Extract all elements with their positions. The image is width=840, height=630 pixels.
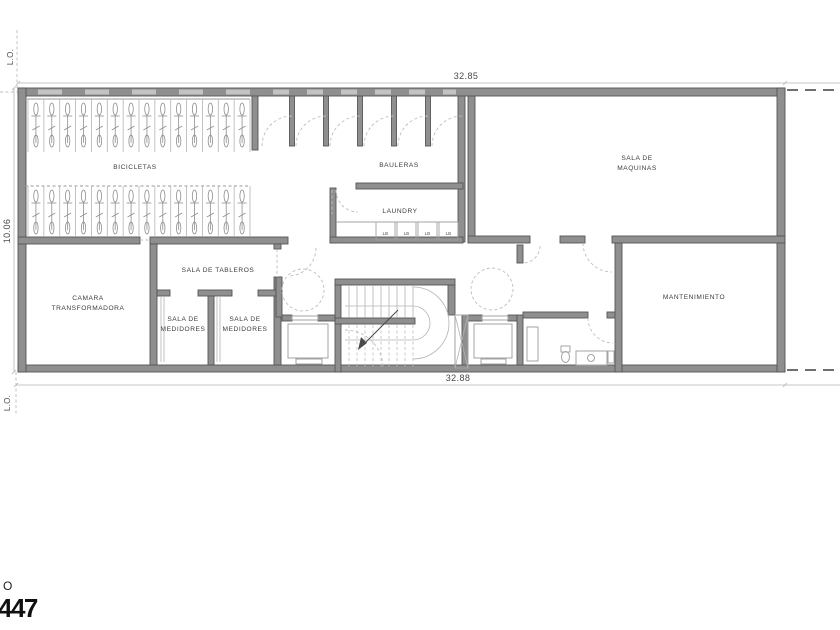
bike-front-wheel: [240, 103, 244, 115]
room-label-medidores-b2: MEDIDORES: [223, 326, 268, 333]
bike-front-wheel: [97, 190, 101, 202]
wall-east: [777, 88, 785, 372]
bath-cabinet: [608, 351, 614, 363]
lobby-door-arc-left: [288, 248, 316, 276]
wall-elev2-west: [462, 315, 468, 365]
stair-rail-outer: [413, 287, 449, 359]
wall-lobby-stub-right: [517, 245, 523, 263]
elevator2-doors: [482, 316, 508, 320]
room-label-camara-2: TRANSFORMADORA: [52, 305, 125, 312]
bike-front-wheel: [129, 190, 133, 202]
wall-stair-north: [335, 279, 455, 285]
bike-glyph: [31, 190, 40, 234]
wall-stair-east-upper: [448, 285, 455, 315]
bike-front-wheel: [129, 103, 133, 115]
bike-glyph: [142, 103, 151, 147]
bike-glyph: [174, 190, 183, 234]
rect-shape: [375, 90, 391, 95]
bike-glyph: [63, 103, 72, 147]
rect-shape: [179, 90, 203, 95]
room-label-medidores-b1: SALA DE: [229, 316, 260, 323]
wall-maquinas-south-a: [468, 236, 530, 243]
wall-elev2-east: [517, 315, 523, 365]
bathroom: [527, 327, 614, 365]
bauleras-partition: [358, 96, 363, 146]
wall-camara-north: [18, 237, 140, 244]
wall-maquinas-south-c: [612, 236, 785, 243]
shower-fixture: [527, 327, 538, 361]
wall-stair-landing: [335, 318, 415, 324]
bauleras-partition: [426, 96, 431, 146]
bike-front-wheel: [50, 103, 54, 115]
bike-front-wheel: [81, 190, 85, 202]
lot-line-label-top: L.O.: [6, 49, 15, 65]
bike-front-wheel: [97, 103, 101, 115]
washer-label: LB: [404, 231, 410, 236]
bike-front-wheel: [176, 190, 180, 202]
bike-front-wheel: [34, 103, 38, 115]
washer-label: LB: [383, 231, 389, 236]
wall-tableros-east-stub: [274, 244, 281, 249]
bike-front-wheel: [145, 190, 149, 202]
rect-shape: [443, 90, 456, 95]
bauleras-storage-units: [262, 96, 462, 146]
wall-mantenimiento-west: [615, 243, 622, 372]
bike-glyph: [238, 190, 247, 234]
bike-front-wheel: [65, 190, 69, 202]
bike-glyph: [158, 103, 167, 147]
bike-glyph: [174, 103, 183, 147]
bike-front-wheel: [192, 103, 196, 115]
room-label-laundry: LAUNDRY: [382, 208, 417, 215]
bike-glyph: [158, 190, 167, 234]
stair-arrow-head: [358, 337, 367, 350]
rect-shape: [38, 90, 62, 95]
bike-glyph: [206, 103, 215, 147]
bike-glyph: [79, 103, 88, 147]
sink-basin: [588, 355, 595, 362]
room-label-maquinas-2: MAQUINAS: [617, 165, 657, 172]
wall-elev2-stub-l: [468, 315, 482, 321]
bike-glyph: [206, 190, 215, 234]
mantenimiento-door-arc: [583, 243, 612, 272]
elevator1-cab: [288, 324, 328, 358]
wall-laundry-north: [356, 183, 463, 189]
room-label-bicicletas: BICICLETAS: [113, 164, 157, 171]
bike-glyph: [142, 190, 151, 234]
rect-shape: [409, 90, 425, 95]
corner-partial-number: 447: [0, 593, 38, 623]
washer-label: LB: [425, 231, 431, 236]
bauleras-door-arc: [296, 116, 326, 146]
wall-south: [18, 365, 785, 372]
elevator1-sill: [296, 359, 322, 364]
bike-glyph: [190, 103, 199, 147]
stair-door-arc: [345, 330, 383, 368]
rect-shape: [85, 90, 109, 95]
wall-medidores-stub-a: [157, 290, 170, 296]
bike-front-wheel: [81, 103, 85, 115]
wall-elev1-stub-r: [318, 315, 335, 321]
bike-front-wheel: [224, 190, 228, 202]
bike-front-wheel: [224, 103, 228, 115]
bike-front-wheel: [240, 190, 244, 202]
laundry-door-arc: [336, 190, 358, 212]
wall-bicicletas-bauleras: [252, 96, 258, 150]
bike-glyph: [111, 190, 120, 234]
bike-glyph: [127, 103, 136, 147]
wall-bath-north: [523, 312, 588, 318]
room-label-tableros: SALA DE TABLEROS: [182, 267, 255, 274]
room-label-bauleras: BAULERAS: [379, 162, 419, 169]
toilet-bowl: [562, 352, 570, 363]
room-label-maquinas-1: SALA DE: [621, 155, 652, 162]
bauleras-door-arc: [364, 116, 394, 146]
wall-maquinas-south-b: [560, 236, 585, 243]
washer-label: LB: [446, 231, 452, 236]
room-label-camara-1: CAMARA: [72, 295, 104, 302]
floor-plan-svg: 32.85 32.88 10.06 L.O. L.O.: [0, 0, 840, 630]
wall-tableros-north: [150, 237, 288, 244]
wall-camara-east: [150, 244, 157, 365]
wall-medidores-stub-b: [198, 290, 232, 296]
bike-glyph: [222, 103, 231, 147]
bike-front-wheel: [145, 103, 149, 115]
floor-plan-sheet: 32.85 32.88 10.06 L.O. L.O.: [0, 0, 840, 630]
bauleras-door-arc: [398, 116, 428, 146]
wall-elev2-stub-r: [508, 315, 517, 321]
rect-shape: [341, 90, 357, 95]
bike-glyph: [95, 190, 104, 234]
bike-glyph: [31, 103, 40, 147]
bike-front-wheel: [208, 103, 212, 115]
rect-shape: [307, 90, 323, 95]
room-label-medidores-a2: MEDIDORES: [161, 326, 206, 333]
dimension-left: 10.06: [2, 219, 12, 244]
bike-glyph: [63, 190, 72, 234]
bathroom-door-arc: [588, 318, 613, 343]
bike-front-wheel: [208, 190, 212, 202]
rect-shape: [132, 90, 156, 95]
bike-glyph: [222, 190, 231, 234]
rect-shape: [226, 90, 250, 95]
bike-glyph: [95, 103, 104, 147]
elevator2-cab: [474, 324, 512, 358]
dimension-bottom: 32.88: [446, 373, 471, 383]
bike-front-wheel: [65, 103, 69, 115]
elevator1-doors: [292, 316, 318, 320]
bauleras-partition: [290, 96, 295, 146]
corner-partial-letter: O: [3, 579, 12, 593]
bauleras-door-arc: [262, 116, 292, 146]
wall-lobby-stub-left: [276, 277, 282, 317]
bike-front-wheel: [161, 103, 165, 115]
wall-maquinas-west: [468, 96, 475, 242]
rect-shape: [273, 90, 289, 95]
bauleras-door-arc: [432, 116, 462, 146]
wall-bauleras-east: [458, 96, 465, 242]
wall-west: [18, 88, 26, 372]
bike-glyph: [190, 190, 199, 234]
bike-glyph: [111, 103, 120, 147]
wall-medidores-divider: [208, 296, 214, 365]
title-block-corner: O 447: [0, 579, 38, 623]
stair-core: [345, 286, 449, 368]
bike-front-wheel: [50, 190, 54, 202]
lot-line-label-bottom: L.O.: [3, 395, 12, 411]
bike-front-wheel: [113, 190, 117, 202]
bike-front-wheel: [34, 190, 38, 202]
stair-rail-inner: [413, 306, 430, 340]
wall-laundry-west: [330, 188, 336, 243]
bauleras-door-arc: [330, 116, 360, 146]
bike-front-wheel: [113, 103, 117, 115]
bike-glyph: [238, 103, 247, 147]
bike-front-wheel: [192, 190, 196, 202]
bauleras-partition: [324, 96, 329, 146]
lobby-door-arc-right: [523, 246, 540, 263]
bike-front-wheel: [176, 103, 180, 115]
bauleras-partition: [392, 96, 397, 146]
elevator2-sill: [481, 359, 506, 364]
bike-glyph: [47, 190, 56, 234]
dimension-top: 32.85: [454, 71, 479, 81]
wall-elev1-stub-l: [282, 315, 292, 321]
bike-glyph: [79, 190, 88, 234]
room-label-mantenimiento: MANTENIMIENTO: [663, 294, 725, 301]
vanity-counter: [576, 351, 607, 365]
turning-circle-right: [471, 268, 513, 310]
wall-stair-west: [335, 285, 341, 372]
turning-circle-left: [282, 269, 324, 311]
bike-front-wheel: [161, 190, 165, 202]
bike-glyph: [47, 103, 56, 147]
bike-glyph: [127, 190, 136, 234]
stair-direction-arrow: [362, 310, 398, 346]
room-label-medidores-a1: SALA DE: [167, 316, 198, 323]
